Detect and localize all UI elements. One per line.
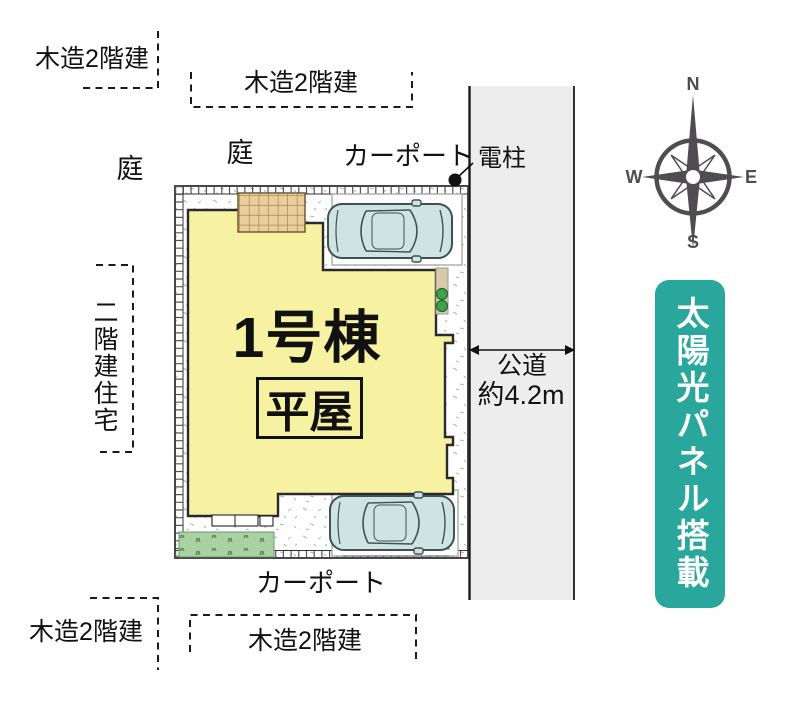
utility-pole-label: 電柱 [478, 146, 526, 171]
car-top [328, 200, 452, 262]
bush-icon [437, 301, 448, 312]
neighbor-left-label: 二階建住宅 [86, 299, 122, 434]
garden-left-label: 庭 [117, 155, 144, 183]
neighbor-top-center-label: 木造2階建 [244, 70, 358, 96]
compass-e-label: E [745, 167, 757, 187]
carport-top-label: カーポート [343, 143, 473, 170]
road-name-label: 公道 [497, 353, 547, 379]
building-name: 1号棟 [233, 309, 382, 369]
bush-icon [437, 289, 448, 300]
compass-n-label: N [687, 74, 700, 94]
neighbor-top-left-label: 木造2階建 [35, 46, 149, 72]
solar-panel-badge-label: 太陽光パネル搭載 [666, 296, 714, 592]
building-type-label: 平屋 [266, 376, 354, 440]
neighbor-bottom-left-label: 木造2階建 [29, 619, 143, 645]
compass-s-label: S [687, 232, 699, 252]
car-bottom [330, 492, 454, 554]
compass-w-label: W [626, 167, 643, 187]
neighbor-bottom-center-label: 木造2階建 [248, 628, 362, 654]
garden-center-label: 庭 [227, 139, 254, 167]
solar-panel-badge: 太陽光パネル搭載 [655, 280, 725, 608]
carport-bottom-label: カーポート [256, 570, 386, 597]
entrance-step-small [260, 516, 273, 526]
road-width-label: 約4.2m [477, 381, 564, 409]
site-plan: N S W E 木造2階建 木造2階建 庭 庭 カーポート 電柱 1号棟 平屋 … [0, 0, 800, 702]
building-type-box: 平屋 [256, 377, 363, 439]
lawn-texture [179, 532, 274, 557]
wood-deck-grid [238, 193, 305, 232]
compass-rose-icon: N S W E [626, 74, 758, 252]
